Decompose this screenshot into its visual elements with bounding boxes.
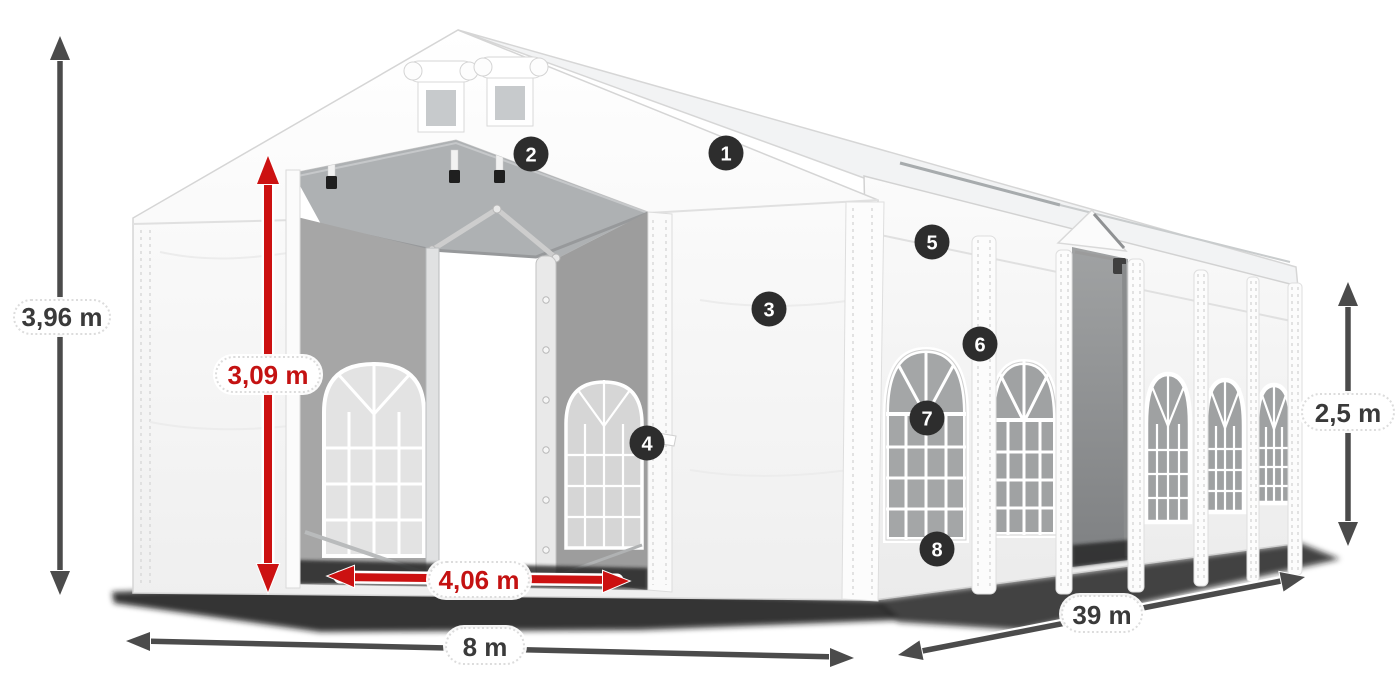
door-width-label: 4,06 m [439,565,520,595]
marker-6-label: 6 [974,335,985,357]
marker-1-label: 1 [720,144,731,166]
marker-8[interactable]: 8 [920,532,955,567]
marker-8-label: 8 [931,540,942,562]
front-door-opening [293,140,648,590]
side-window-2 [992,360,1056,535]
door-height-label: 3,09 m [228,360,309,390]
marker-3-label: 3 [763,300,774,322]
inner-post [426,248,439,581]
side-window-3 [1146,372,1190,522]
marker-2[interactable]: 2 [514,137,549,172]
total-height-label: 3,96 m [22,302,103,332]
interior-window-right [566,380,642,548]
front-width-label: 8 m [463,632,508,662]
side-window-5 [1257,383,1291,503]
marker-4-label: 4 [641,434,653,456]
marker-7-label: 7 [921,409,932,431]
door-pole [1124,264,1126,556]
marker-6[interactable]: 6 [963,327,998,362]
front-corner-strap [842,202,884,601]
side-height-label: 2,5 m [1315,398,1382,428]
side-window-4 [1206,378,1244,512]
rolled-inner-door [536,256,556,578]
marker-5[interactable]: 5 [915,225,950,260]
tent-dimension-diagram: 3,96 m 3,09 m 4,06 m 8 m [0,0,1400,700]
front-right-door-edge [648,212,672,592]
vent-mesh [495,86,525,120]
frame-joint [493,205,501,213]
marker-5-label: 5 [926,233,937,255]
marker-3[interactable]: 3 [752,292,787,327]
marker-2-label: 2 [525,145,536,167]
marker-4[interactable]: 4 [630,426,665,461]
interior-window-left [324,362,424,556]
marker-1[interactable]: 1 [709,136,744,171]
side-length-label: 39 m [1072,600,1131,630]
vent-mesh [426,90,456,126]
side-window-1 [886,350,966,540]
marker-7[interactable]: 7 [910,401,945,436]
